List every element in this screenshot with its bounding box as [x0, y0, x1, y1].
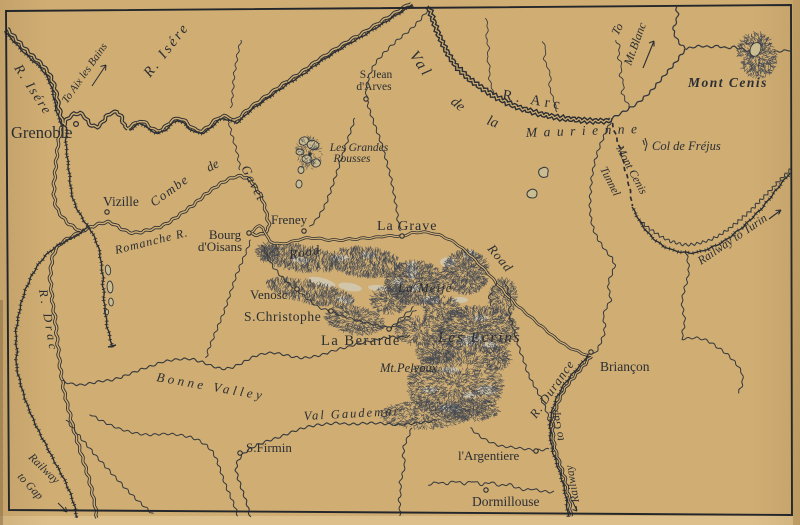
svg-text:d'Oisans: d'Oisans [198, 239, 242, 254]
svg-text:Col de Fréjus: Col de Fréjus [652, 139, 721, 153]
svg-text:Dormillouse: Dormillouse [472, 494, 540, 509]
svg-text:Vizille: Vizille [103, 194, 139, 209]
svg-text:Rousses: Rousses [332, 153, 371, 165]
svg-text:Les Ecrins: Les Ecrins [437, 330, 522, 346]
svg-text:Mont Cenis: Mont Cenis [687, 75, 768, 90]
svg-text:Grenoble: Grenoble [11, 123, 72, 142]
svg-text:S.Firmin: S.Firmin [246, 440, 292, 455]
svg-text:La Grave: La Grave [377, 219, 437, 234]
svg-text:La Berarde: La Berarde [321, 333, 401, 349]
svg-text:d'Arves: d'Arves [356, 81, 392, 93]
svg-text:S. Jean: S. Jean [360, 69, 393, 81]
svg-text:l'Argentiere: l'Argentiere [458, 448, 520, 463]
svg-text:Mt.Pelvoux: Mt.Pelvoux [379, 361, 438, 375]
svg-text:S.Christophe: S.Christophe [244, 309, 321, 324]
svg-text:Freney: Freney [271, 212, 308, 227]
svg-text:Briançon: Briançon [600, 359, 650, 374]
svg-text:Venosc: Venosc [250, 287, 288, 302]
svg-text:La Meije: La Meije [397, 280, 453, 295]
